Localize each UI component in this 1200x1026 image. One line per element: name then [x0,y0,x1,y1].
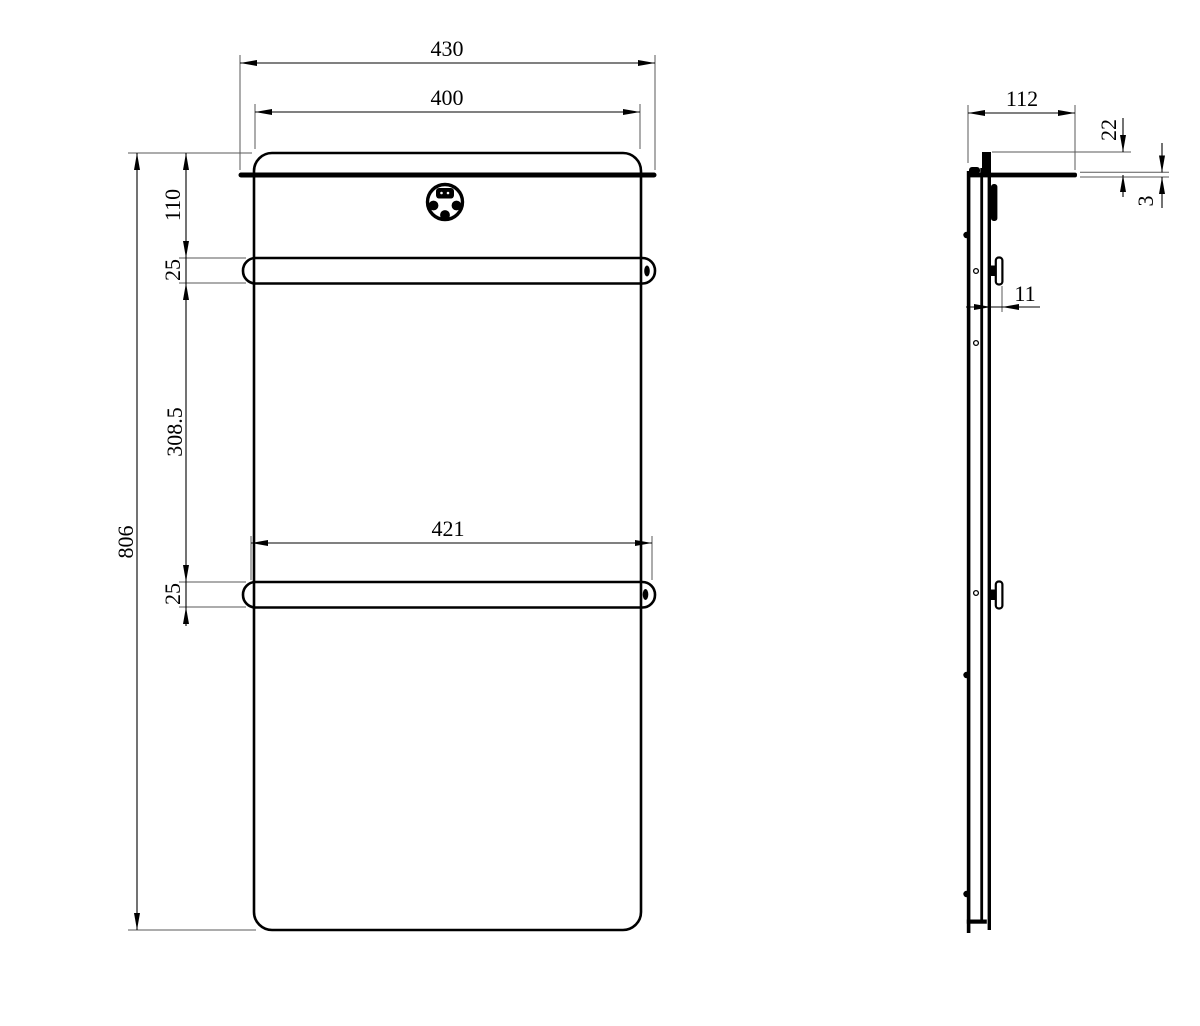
dim-label-bar-spacing: 308.5 [162,407,187,457]
dim-bar-length: 421 [251,516,652,546]
shelf-side-profile [967,173,1077,178]
arrowhead [183,607,189,624]
dim-label-top-to-shelf: 22 [1096,119,1121,141]
bracket-hole [974,269,979,274]
dim-bar-standoff: 11 [966,281,1040,310]
arrowhead [183,565,189,582]
arrowhead [255,109,272,115]
dim-vertical-chain: 110 25 308.5 25 [160,153,189,626]
arrowhead [635,540,652,546]
bracket-hole [974,591,979,596]
arrowhead [1159,177,1165,194]
arrowhead [240,60,257,66]
control-side-profile [991,184,997,221]
arrowhead [183,241,189,258]
arrowhead [623,109,640,115]
arrowhead [134,153,140,170]
side-extension-lines [968,105,1169,312]
towel-bar-bottom-slot [643,589,649,600]
dim-overall-width: 430 [240,36,655,66]
dim-panel-width: 400 [255,85,640,115]
display-dot [447,192,450,195]
control-button-right [452,201,462,211]
technical-drawing: 430 400 421 806 [0,0,1200,1026]
panel-front-edge [988,152,991,930]
control-display [436,188,454,199]
control-button-bottom [440,210,450,220]
dim-label-overall-width: 430 [431,36,464,61]
dim-label-shelf-thickness: 3 [1133,196,1158,207]
arrowhead [1159,156,1165,173]
arrowhead [638,60,655,66]
bracket-foot [967,920,987,924]
towel-bar-top-slot [644,266,650,277]
dim-label-depth: 112 [1006,86,1038,111]
dim-label-top-to-bar: 110 [160,189,185,221]
bar-peg-bottom [991,582,1002,609]
display-dot [440,192,443,195]
wall-bracket [967,171,971,933]
bracket-hole [974,341,979,346]
towel-bar-bottom [243,582,655,608]
peg-cap [996,582,1003,609]
page: 430 400 421 806 [0,0,1200,1026]
dim-shelf-thickness: 3 [1133,143,1165,208]
arrowhead [1120,175,1126,192]
control-dial [428,185,463,220]
control-button-left [429,201,439,211]
dim-label-bar-length: 421 [432,516,465,541]
towel-bar-top [243,258,655,284]
arrowhead [1058,110,1075,116]
panel-outline [254,153,641,930]
dim-top-to-shelf: 22 [1096,118,1126,197]
panel-back-edge [980,168,983,921]
arrowhead [183,283,189,300]
arrowhead [183,153,189,170]
dim-depth: 112 [968,86,1075,116]
dim-label-bottom-bar-thickness: 25 [160,583,185,605]
dim-label-top-bar-thickness: 25 [160,259,185,281]
dim-label-bar-standoff: 11 [1014,281,1035,306]
dim-label-panel-width: 400 [431,85,464,110]
top-shelf [239,173,657,178]
dim-overall-height: 806 [113,153,140,930]
bar-peg-top [991,258,1002,285]
peg-cap [996,258,1003,285]
arrowhead [968,110,985,116]
side-view: 112 22 3 11 [963,86,1169,933]
arrowhead [134,913,140,930]
dim-label-overall-height: 806 [113,526,138,559]
front-extension-lines [128,55,655,930]
front-view: 430 400 421 806 [113,36,657,930]
